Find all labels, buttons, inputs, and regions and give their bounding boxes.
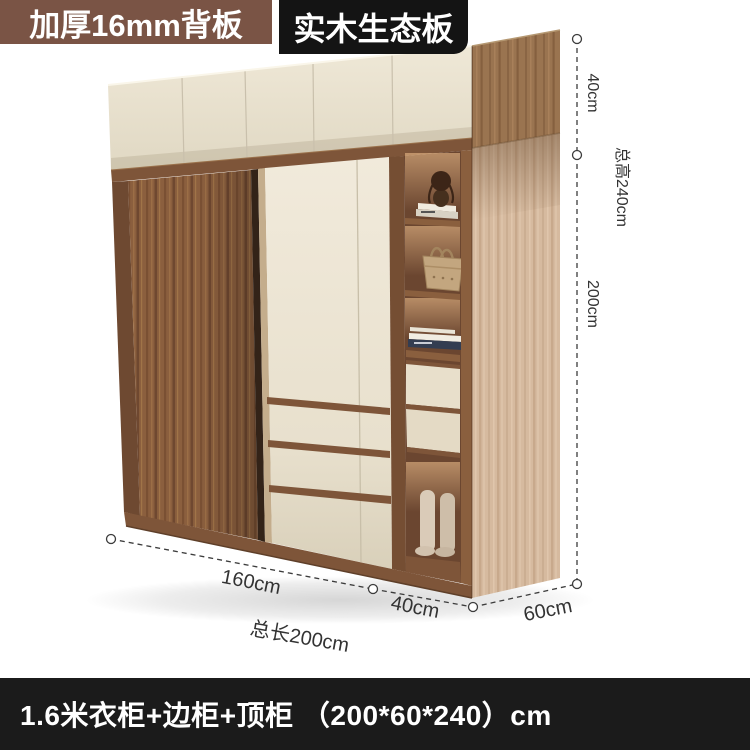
side-drawer-2: [406, 409, 460, 453]
dim-label-total-height: 总高240cm: [612, 147, 636, 227]
front-corner-strip: [461, 150, 472, 586]
main-body: [112, 157, 392, 569]
footer-caption: 1.6米衣柜+边柜+顶柜 （200*60*240）cm: [20, 694, 552, 734]
stacked-books: [408, 327, 462, 350]
badge-eco-board: 实木生态板: [279, 0, 468, 54]
sliding-door-cream: [265, 157, 392, 569]
wardrobe-illustration: [0, 0, 750, 750]
side-cabinet: [389, 150, 472, 586]
wardrobe: [108, 30, 560, 598]
side-panel: [472, 30, 560, 598]
footer-bar: 1.6米衣柜+边柜+顶柜 （200*60*240）cm: [0, 678, 750, 750]
side-drawer-1: [406, 364, 460, 409]
side-panel-top: [472, 30, 560, 148]
dim-label-body-height: 200cm: [583, 280, 601, 328]
badge-back-panel: 加厚16mm背板: [0, 0, 272, 44]
product-image: 加厚16mm背板 实木生态板 160cm 40cm 总长200cm 60cm 4…: [0, 0, 750, 750]
dim-label-top-height: 40cm: [583, 73, 601, 112]
